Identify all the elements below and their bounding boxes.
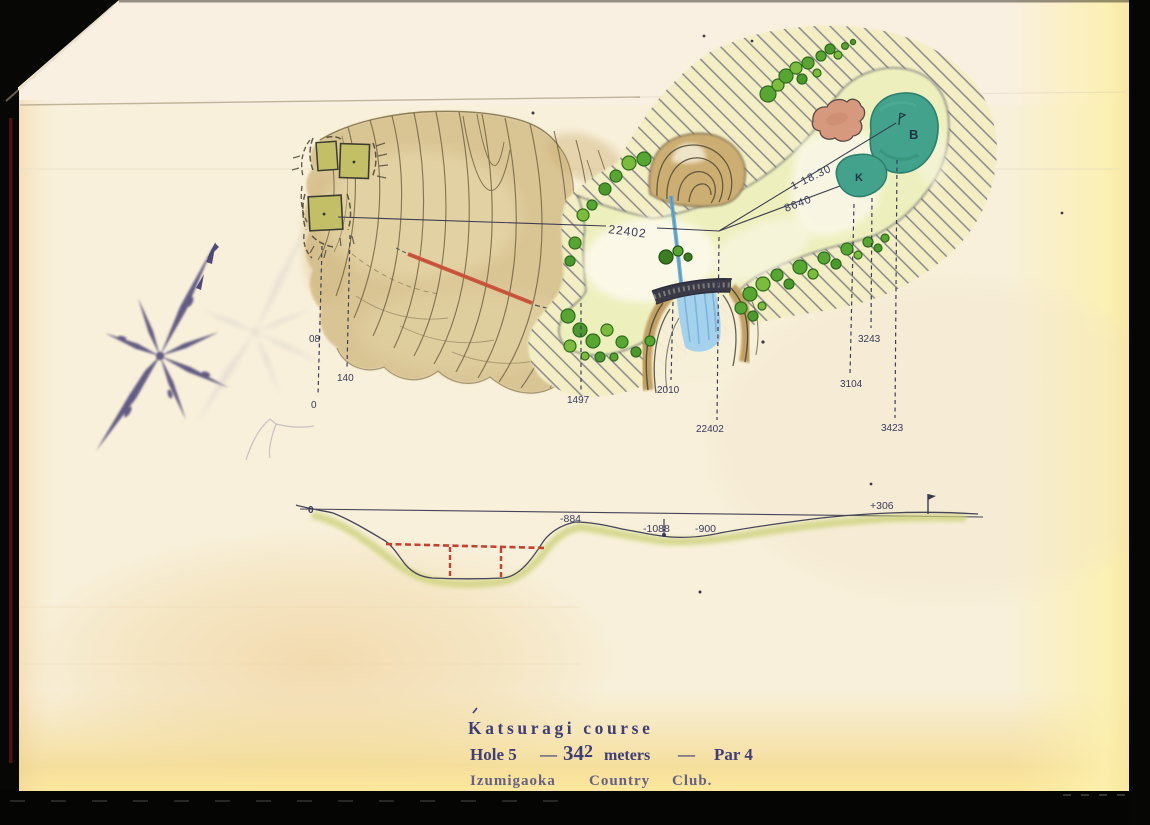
svg-text:08: 08	[309, 334, 321, 345]
svg-text:3104: 3104	[840, 379, 863, 390]
svg-text:K: K	[855, 172, 863, 184]
svg-text:140: 140	[337, 373, 354, 384]
svg-text:+306: +306	[870, 500, 894, 512]
svg-text:3243: 3243	[858, 334, 881, 345]
svg-text:0: 0	[311, 400, 317, 411]
svg-text:IzumigaokaCountryClub.: IzumigaokaCountryClub.	[470, 773, 712, 789]
svg-text:22402: 22402	[696, 424, 724, 435]
svg-text:1497: 1497	[567, 395, 590, 406]
svg-text:-1088: -1088	[643, 523, 670, 535]
svg-text:3423: 3423	[881, 423, 904, 434]
svg-text:0: 0	[308, 505, 314, 516]
svg-text:2010: 2010	[657, 385, 680, 396]
svg-text:-884: -884	[560, 513, 581, 525]
svg-text:B: B	[909, 127, 918, 142]
svg-text:-900: -900	[695, 523, 716, 535]
svg-text:Katsuragi course: Katsuragi course	[468, 718, 653, 738]
